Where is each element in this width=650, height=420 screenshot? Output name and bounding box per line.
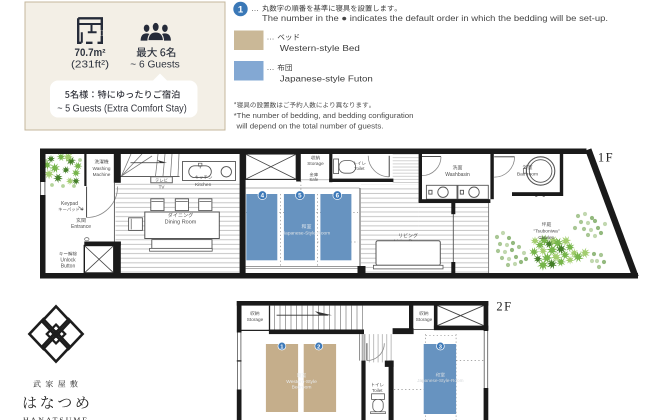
svg-text:TV: TV bbox=[159, 184, 166, 189]
svg-text:Western-Style: Western-Style bbox=[286, 379, 317, 385]
svg-text:2F: 2F bbox=[496, 300, 512, 314]
svg-text:HANATSUME: HANATSUME bbox=[23, 415, 89, 420]
svg-text:Entrance: Entrance bbox=[71, 224, 91, 230]
svg-text:~ 5 Guests (Extra Comfort Stay: ~ 5 Guests (Extra Comfort Stay) bbox=[57, 103, 187, 114]
svg-text:The number in the ● indicates: The number in the ● indicates the defaul… bbox=[262, 13, 608, 23]
svg-text:Garden: Garden bbox=[538, 235, 554, 241]
svg-text:…: … bbox=[267, 63, 275, 72]
svg-text:1F: 1F bbox=[598, 151, 614, 165]
svg-text:Keypad: Keypad bbox=[61, 201, 78, 207]
svg-text:2: 2 bbox=[317, 344, 320, 350]
svg-text:~ 6 Guests: ~ 6 Guests bbox=[130, 60, 180, 71]
svg-text:Toilet: Toilet bbox=[354, 166, 365, 171]
svg-text:Washbasin: Washbasin bbox=[445, 172, 470, 178]
svg-text:Storage: Storage bbox=[247, 317, 264, 322]
svg-text:*The number of bedding, and be: *The number of bedding, and bedding conf… bbox=[234, 111, 414, 120]
svg-text:Toilet: Toilet bbox=[372, 388, 383, 393]
svg-text:Storage: Storage bbox=[307, 161, 324, 166]
svg-text:(231ft²): (231ft²) bbox=[71, 60, 109, 71]
svg-text:will depend on the total numbe: will depend on the total number of guest… bbox=[235, 122, 383, 131]
svg-text:Storage: Storage bbox=[416, 317, 433, 322]
svg-text:…: … bbox=[267, 33, 275, 42]
svg-text:Japanese-Style-Room: Japanese-Style-Room bbox=[417, 378, 463, 383]
svg-text:Button: Button bbox=[61, 264, 76, 270]
svg-text:Washing: Washing bbox=[92, 166, 110, 171]
svg-text:"Tsuboniwa": "Tsuboniwa" bbox=[533, 229, 559, 235]
svg-text:Unlock: Unlock bbox=[60, 257, 76, 263]
svg-text:Safe: Safe bbox=[309, 177, 318, 182]
svg-text:…: … bbox=[251, 4, 259, 13]
svg-text:6: 6 bbox=[336, 193, 340, 200]
svg-text:Kitchen: Kitchen bbox=[195, 182, 212, 188]
svg-text:Bedroom: Bedroom bbox=[292, 385, 312, 391]
svg-text:70.7m²: 70.7m² bbox=[75, 47, 106, 59]
svg-text:5: 5 bbox=[298, 193, 302, 200]
svg-text:Japanese-style Futon: Japanese-style Futon bbox=[280, 73, 373, 83]
svg-text:Dining Room: Dining Room bbox=[165, 219, 197, 225]
svg-text:4: 4 bbox=[261, 193, 265, 200]
svg-text:Japanese-Style-Room: Japanese-Style-Room bbox=[283, 231, 330, 237]
svg-text:Bathroom: Bathroom bbox=[517, 172, 538, 178]
svg-text:Machine: Machine bbox=[93, 172, 111, 177]
svg-text:1: 1 bbox=[238, 4, 244, 15]
svg-text:Western-style Bed: Western-style Bed bbox=[280, 43, 360, 53]
